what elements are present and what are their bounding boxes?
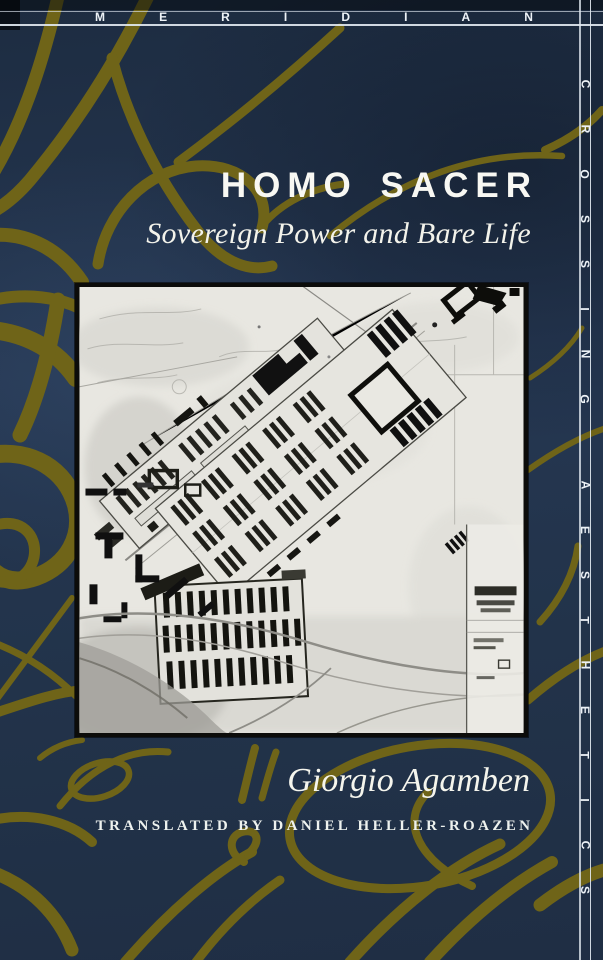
book-title: HOMO SACER xyxy=(146,166,538,206)
letter: G xyxy=(579,394,591,403)
letter: H xyxy=(579,661,591,670)
letter: I xyxy=(579,798,591,801)
letter: E xyxy=(159,10,167,24)
letter: O xyxy=(579,169,591,178)
letter: C xyxy=(579,80,591,89)
letter: I xyxy=(404,10,407,24)
letter: D xyxy=(341,10,350,24)
camp-plan-photo xyxy=(75,283,528,737)
author-name: Giorgio Agamben xyxy=(287,762,530,800)
camp-plan-drawing xyxy=(79,287,524,733)
letter: T xyxy=(579,751,591,758)
letter: E xyxy=(579,706,591,714)
letter: M xyxy=(95,10,105,24)
letter: R xyxy=(579,125,591,134)
series-side-word-crossing: CROSSING xyxy=(580,78,589,405)
letter: S xyxy=(579,886,591,894)
series-side-word-aesthetics: AESTHETICS xyxy=(581,479,590,896)
letter: C xyxy=(579,841,591,850)
series-top-label: MERIDIAN xyxy=(95,9,533,25)
letter: E xyxy=(579,526,591,534)
letter: I xyxy=(579,307,591,310)
letter: A xyxy=(462,10,471,24)
book-subtitle: Sovereign Power and Bare Life xyxy=(146,217,531,251)
letter: T xyxy=(579,616,591,623)
title-block: HOMO SACER Sovereign Power and Bare Life xyxy=(146,166,531,251)
letter: S xyxy=(579,260,591,268)
letter: A xyxy=(579,481,591,490)
letter: S xyxy=(579,215,591,223)
letter: I xyxy=(284,10,287,24)
series-side-label: CROSSING AESTHETICS xyxy=(577,78,593,896)
translator-credit: TRANSLATED BY DANIEL HELLER-ROAZEN xyxy=(96,818,534,835)
book-cover: MERIDIAN CROSSING AESTHETICS HOMO SACER … xyxy=(0,0,603,960)
letter: N xyxy=(579,350,591,359)
top-left-dark-corner xyxy=(0,0,20,30)
letter: S xyxy=(579,571,591,579)
letter: N xyxy=(524,10,533,24)
letter: R xyxy=(221,10,230,24)
